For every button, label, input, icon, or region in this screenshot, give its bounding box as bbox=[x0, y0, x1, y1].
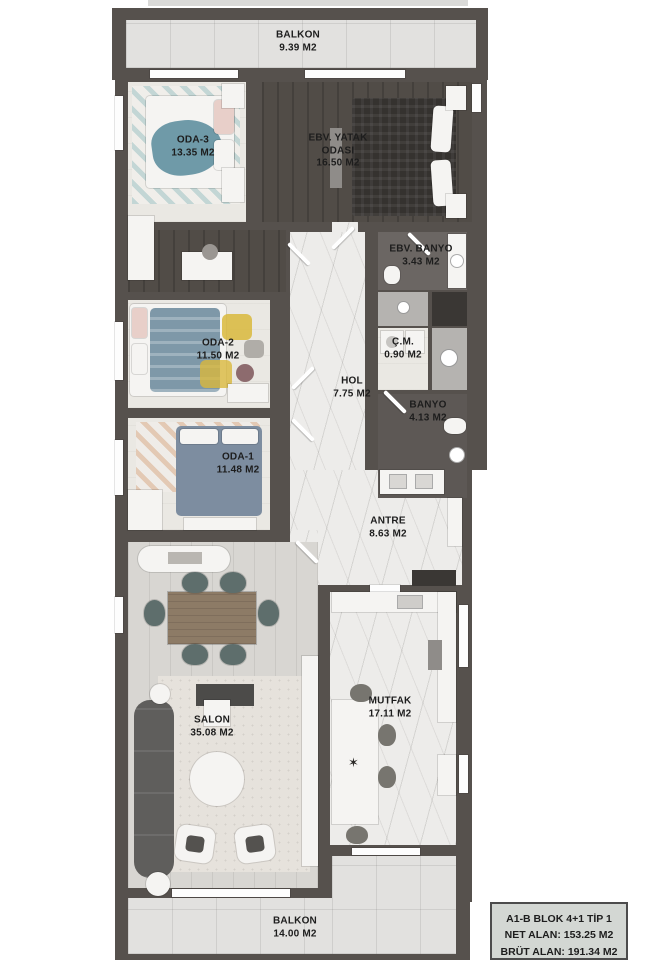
pillow bbox=[430, 105, 453, 152]
toilet bbox=[384, 266, 400, 284]
window bbox=[115, 597, 123, 633]
room-label-cm: Ç.M.0.90 M2 bbox=[384, 337, 422, 362]
wardrobe bbox=[222, 84, 244, 108]
room-label-mutfak: MUTFAK17.11 M2 bbox=[369, 696, 412, 721]
toilet bbox=[444, 418, 466, 434]
shaft bbox=[432, 292, 467, 326]
wardrobe bbox=[128, 216, 154, 280]
kitchen-chair bbox=[378, 724, 396, 746]
room-label-banyo: BANYO4.13 M2 bbox=[409, 400, 447, 425]
window bbox=[370, 585, 400, 592]
desk-chair bbox=[202, 244, 218, 260]
stove bbox=[428, 640, 442, 670]
window bbox=[115, 440, 123, 495]
armchair-seat bbox=[245, 835, 265, 853]
room-balkon-bottom-floor-ext bbox=[332, 856, 456, 954]
sideboard-items bbox=[168, 552, 202, 564]
window bbox=[305, 70, 405, 78]
nightstand bbox=[446, 194, 466, 218]
round-table bbox=[190, 752, 244, 806]
pillow bbox=[132, 344, 147, 374]
sink bbox=[450, 448, 464, 462]
pouf bbox=[236, 364, 254, 382]
room-label-balkon-top: BALKON9.39 M2 bbox=[276, 30, 320, 55]
dining-chair bbox=[182, 572, 208, 593]
room-label-ebv-banyo: EBV. BANYO3.43 M2 bbox=[389, 244, 452, 269]
info-box-net-area: NET ALAN: 153.25 M2 bbox=[492, 927, 626, 943]
info-box-gross-area: BRÜT ALAN: 191.34 M2 bbox=[492, 944, 626, 960]
room-label-oda-1: ODA-111.48 M2 bbox=[217, 452, 260, 477]
pillow bbox=[214, 140, 234, 170]
kitchen-sink bbox=[398, 596, 422, 608]
window bbox=[472, 84, 481, 112]
dining-chair bbox=[220, 644, 246, 665]
wardrobe bbox=[448, 498, 462, 546]
shower-drain bbox=[398, 302, 409, 313]
counter bbox=[412, 570, 456, 586]
bench bbox=[184, 518, 256, 530]
window bbox=[115, 96, 123, 150]
rug-hex bbox=[222, 314, 252, 340]
vanity-sink bbox=[390, 475, 406, 488]
table-decor-star: ✶ bbox=[348, 756, 359, 769]
armchair-seat bbox=[185, 835, 205, 853]
side-table bbox=[150, 684, 170, 704]
nightstand bbox=[446, 86, 466, 110]
room-label-oda-2: ODA-211.50 M2 bbox=[197, 338, 240, 363]
wardrobe bbox=[222, 168, 244, 202]
room-label-salon: SALON35.08 M2 bbox=[190, 715, 233, 740]
room-label-oda-3: ODA-313.35 M2 bbox=[171, 135, 214, 160]
dining-chair bbox=[182, 644, 208, 665]
window bbox=[115, 322, 123, 380]
nightstand bbox=[128, 490, 162, 530]
pillow bbox=[132, 308, 147, 338]
dining-chair bbox=[144, 600, 165, 626]
kitchen-chair bbox=[346, 826, 368, 844]
dining-chair bbox=[220, 572, 246, 593]
kitchen-counter bbox=[438, 755, 456, 795]
bench bbox=[228, 384, 268, 402]
vanity-sink bbox=[416, 475, 432, 488]
window bbox=[459, 605, 468, 667]
room-label-antre: ANTRE8.63 M2 bbox=[369, 516, 407, 541]
kitchen-chair bbox=[378, 766, 396, 788]
room-label-hol: HOL7.75 M2 bbox=[333, 376, 371, 401]
room-label-ebv-yatak: EBV. YATAK ODASI16.50 M2 bbox=[296, 132, 380, 170]
dining-chair bbox=[258, 600, 279, 626]
side-table bbox=[146, 872, 170, 896]
dining-table bbox=[168, 592, 256, 644]
pillow bbox=[222, 429, 258, 444]
sink bbox=[451, 255, 463, 267]
window bbox=[150, 70, 238, 78]
shower-drain bbox=[441, 350, 457, 366]
info-box: A1-B BLOK 4+1 TİP 1 NET ALAN: 153.25 M2 … bbox=[490, 902, 628, 960]
roof-edge bbox=[148, 0, 468, 6]
window bbox=[172, 889, 290, 897]
pillow bbox=[180, 429, 218, 444]
info-box-title: A1-B BLOK 4+1 TİP 1 bbox=[492, 911, 626, 927]
sofa bbox=[134, 700, 174, 878]
floor-plan: ✶ BALKON9.39 M2 ODA-313.35 M2 EBV. YATAK… bbox=[0, 0, 660, 975]
window bbox=[352, 848, 420, 855]
window bbox=[459, 755, 468, 793]
room-label-balkon-bottom: BALKON14.00 M2 bbox=[273, 916, 317, 941]
rug-hex bbox=[244, 340, 264, 358]
console bbox=[302, 656, 318, 866]
